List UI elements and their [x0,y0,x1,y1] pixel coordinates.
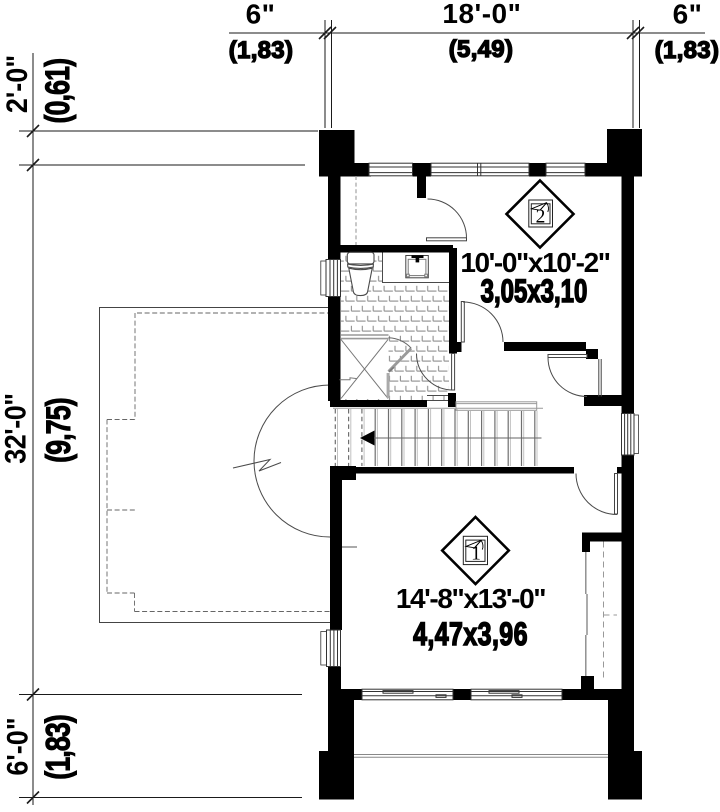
svg-text:2: 2 [536,207,546,228]
svg-text:(0,61): (0,61) [38,59,77,124]
svg-text:(1,83): (1,83) [38,715,77,780]
svg-text:(9,75): (9,75) [39,398,78,463]
svg-text:6": 6" [673,0,703,30]
svg-text:2'-0": 2'-0" [1,55,34,113]
svg-text:(1,83): (1,83) [229,37,294,64]
svg-text:(1,83): (1,83) [655,37,720,64]
svg-text:4,47x3,96: 4,47x3,96 [413,617,528,653]
svg-text:3,05x3,10: 3,05x3,10 [481,274,588,310]
svg-text:(5,49): (5,49) [449,36,514,63]
svg-text:32'-0": 32'-0" [0,393,33,463]
svg-text:18'-0": 18'-0" [442,0,521,29]
svg-text:1: 1 [471,544,481,565]
svg-text:6": 6" [246,0,276,30]
svg-text:14'-8"x13'-0": 14'-8"x13'-0" [396,583,545,614]
svg-text:6'-0": 6'-0" [1,717,34,775]
